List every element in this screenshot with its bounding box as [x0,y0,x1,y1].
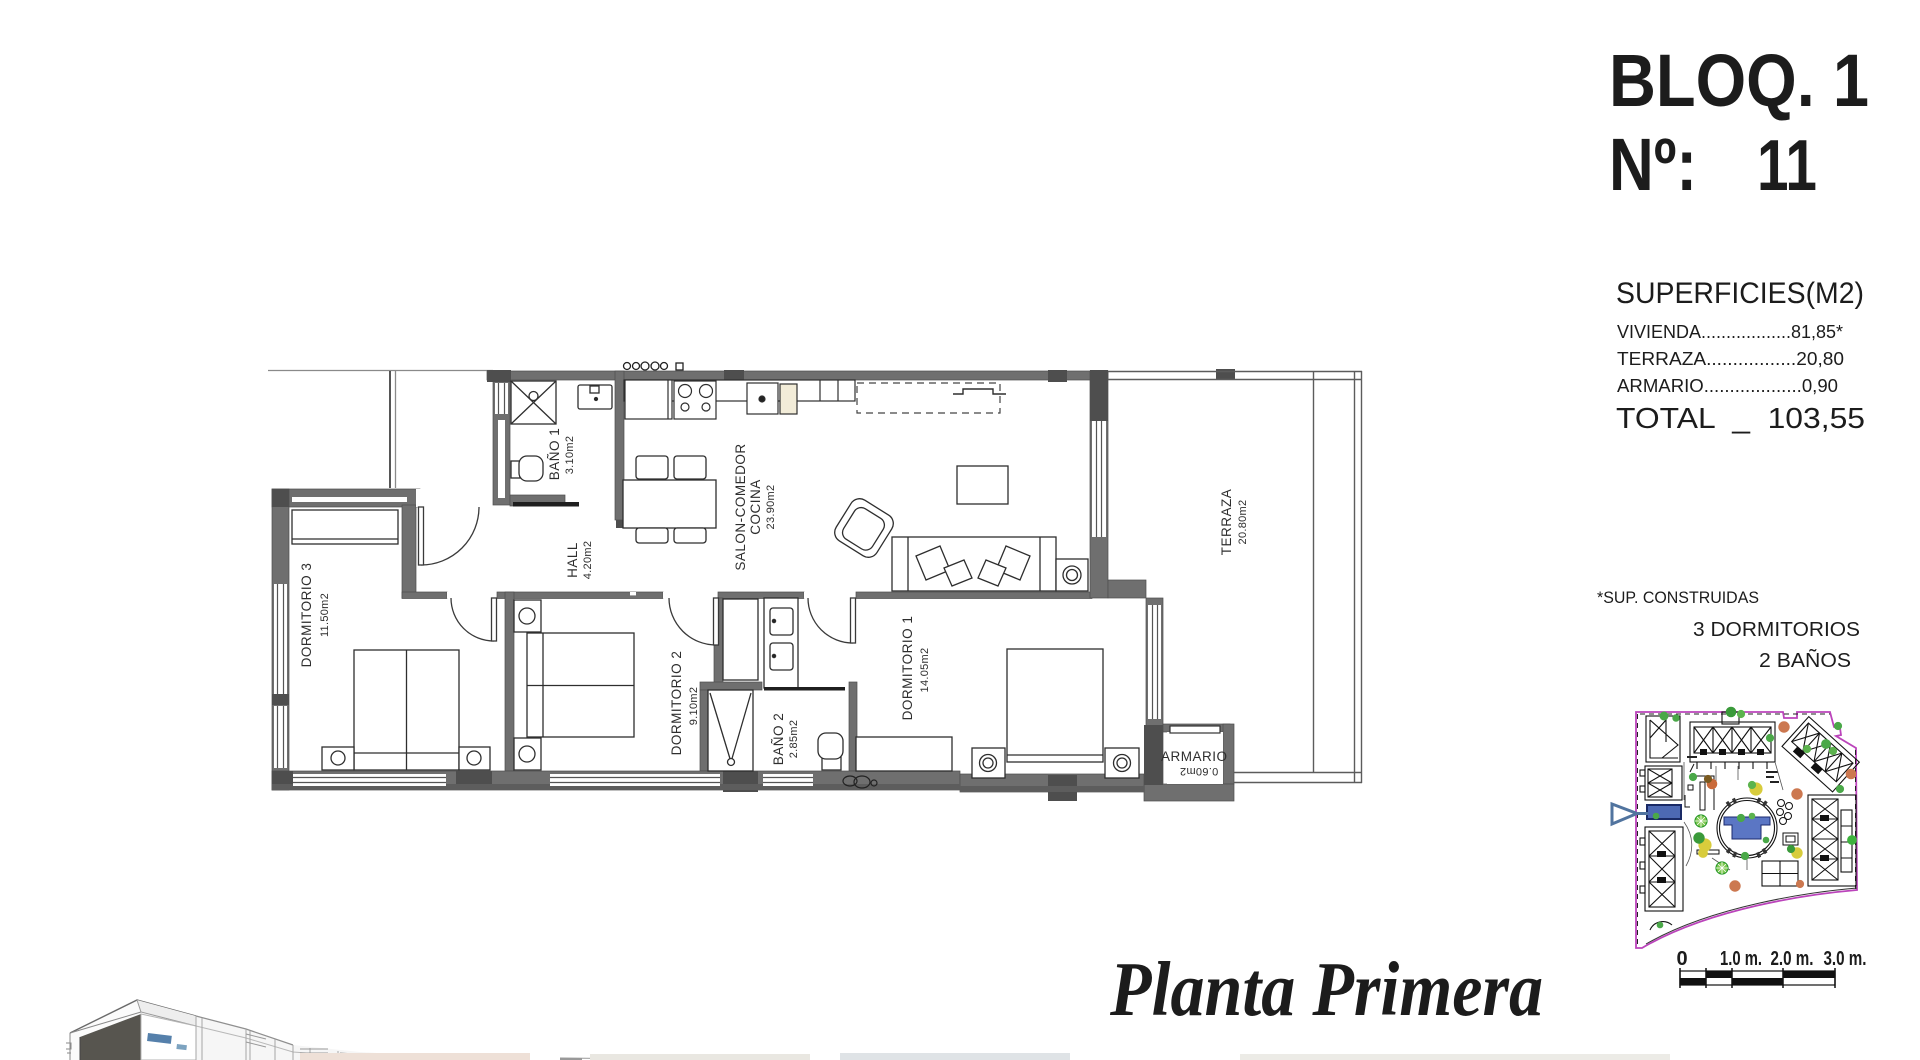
svg-text:ARMARIO...................0,90: ARMARIO...................0,90 [1617,375,1838,396]
svg-text:TERRAZA: TERRAZA [1219,489,1234,556]
svg-text:20.80m2: 20.80m2 [1237,500,1249,545]
svg-text:4.20m2: 4.20m2 [582,541,594,580]
svg-text:COCINA: COCINA [748,479,763,535]
svg-text:Planta Primera: Planta Primera [1109,946,1543,1032]
svg-text:3.10m2: 3.10m2 [564,436,576,475]
svg-text:VIVIENDA..................81,8: VIVIENDA..................81,85* [1617,321,1843,342]
svg-text:DORMITORIO 3: DORMITORIO 3 [299,563,314,668]
svg-text:BAÑO 1: BAÑO 1 [547,428,562,481]
svg-text:3.0 m.: 3.0 m. [1824,948,1867,970]
svg-text:2 BAÑOS: 2 BAÑOS [1759,648,1851,672]
svg-text:DORMITORIO 2: DORMITORIO 2 [669,651,684,756]
svg-text:14.05m2: 14.05m2 [919,648,931,693]
svg-text:BLOQ. 1: BLOQ. 1 [1609,39,1869,122]
svg-text:23.90m2: 23.90m2 [765,485,777,530]
svg-text:0.60m2: 0.60m2 [1180,765,1219,777]
svg-text:BAÑO 2: BAÑO 2 [771,713,786,766]
svg-text:3 DORMITORIOS: 3 DORMITORIOS [1693,619,1860,641]
svg-text:9.10m2: 9.10m2 [688,687,700,726]
svg-text:TERRAZA.................20,80: TERRAZA.................20,80 [1617,348,1844,369]
svg-text:0: 0 [1676,948,1687,970]
svg-text:HALL: HALL [565,542,580,578]
svg-text:TOTAL _ 103,55: TOTAL _ 103,55 [1616,403,1865,435]
svg-text:DORMITORIO 1: DORMITORIO 1 [900,616,915,721]
svg-text:1.0 m.: 1.0 m. [1720,948,1762,970]
svg-text:11.50m2: 11.50m2 [319,593,331,637]
svg-text:*SUP. CONSTRUIDAS: *SUP. CONSTRUIDAS [1597,589,1759,607]
svg-text:Nº:: Nº: [1609,123,1697,206]
svg-text:2.0 m.: 2.0 m. [1771,948,1814,970]
svg-text:SUPERFICIES(M2): SUPERFICIES(M2) [1616,277,1864,310]
svg-text:SALON-COMEDOR: SALON-COMEDOR [733,443,748,570]
svg-text:2.85m2: 2.85m2 [788,720,800,759]
svg-text:11: 11 [1757,126,1817,206]
svg-text:ARMARIO: ARMARIO [1161,749,1228,764]
